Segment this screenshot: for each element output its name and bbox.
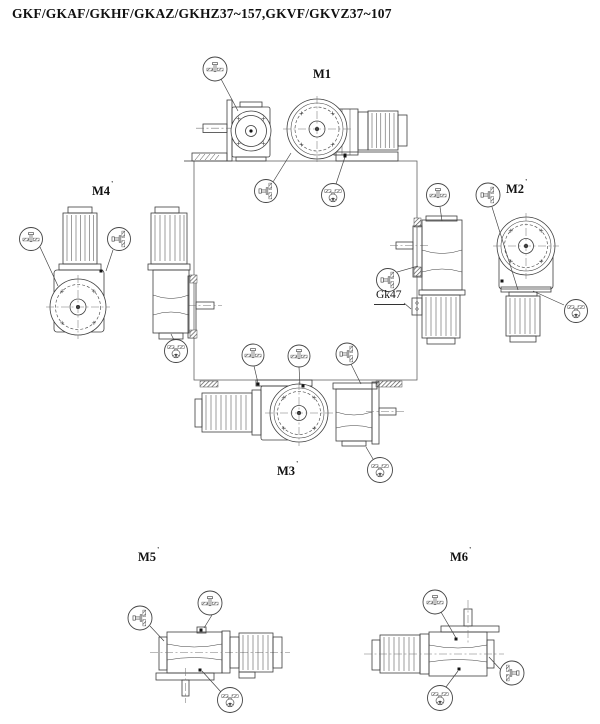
label-m4-text: M4 xyxy=(92,184,110,198)
label-m6: M6' xyxy=(450,550,470,564)
motor-flange xyxy=(148,264,190,270)
oil-level-callout xyxy=(242,344,264,386)
m4-side-view xyxy=(148,207,190,339)
housing-cap xyxy=(159,637,167,670)
oil-level-callout xyxy=(198,591,222,628)
motor-cap xyxy=(155,207,179,213)
label-m6-text: M6 xyxy=(450,550,468,564)
oil-fill-callout xyxy=(336,343,361,384)
oil-drain-callout xyxy=(202,671,243,713)
motor-fins xyxy=(67,215,94,261)
motor-flange xyxy=(59,264,101,270)
label-m2: M2' xyxy=(506,182,526,196)
oil-fill-callout xyxy=(255,153,292,203)
label-m5-sup: ' xyxy=(157,545,159,554)
motor-adapter xyxy=(509,292,537,296)
label-m3-sup: ' xyxy=(296,459,298,468)
m2-front-view xyxy=(493,213,559,342)
label-m1: M1 xyxy=(313,67,331,81)
output-flange-plate xyxy=(372,382,379,444)
base-plate xyxy=(156,673,214,680)
label-m5: M5' xyxy=(138,550,158,564)
terminal-box xyxy=(239,672,255,678)
m4-wall-flange xyxy=(188,275,222,338)
label-m5-text: M5 xyxy=(138,550,156,564)
oil-fill-callout xyxy=(106,228,131,272)
oil-drain-callout xyxy=(428,671,459,711)
gear-housing xyxy=(422,220,462,290)
ceiling-flange xyxy=(333,383,377,389)
motor-mount-flange xyxy=(419,290,465,295)
foot-plate xyxy=(501,287,551,292)
motor-fins xyxy=(206,395,246,430)
oil-level-callout xyxy=(203,57,238,111)
label-gk47: Gk47 xyxy=(374,290,405,305)
m3-front-view xyxy=(195,380,333,446)
motor-adapter xyxy=(358,112,368,150)
gear-unit-m5 xyxy=(150,627,290,703)
label-m3: M3' xyxy=(277,464,297,478)
label-m2-text: M2 xyxy=(506,182,524,196)
bracket-hatch xyxy=(195,154,219,160)
motor-cap xyxy=(68,207,92,213)
mounting-positions-diagram: GKF/GKAF/GKHF/GKAZ/GKHZ37~157,GKVF/GKVZ3… xyxy=(0,0,600,724)
oil-level-callout xyxy=(423,590,456,638)
page-title: GKF/GKAF/GKHF/GKAZ/GKHZ37~157,GKVF/GKVZ3… xyxy=(12,6,392,22)
motor-fins xyxy=(372,113,394,148)
motor-fins xyxy=(426,297,456,336)
gear-unit-m3 xyxy=(195,380,404,446)
label-m4-sup: ' xyxy=(111,179,113,188)
motor-cap xyxy=(195,399,202,427)
label-m6-sup: ' xyxy=(469,545,471,554)
motor-body xyxy=(202,393,252,432)
oil-fill-callout xyxy=(128,606,164,641)
oil-drain-callout xyxy=(366,447,393,483)
label-m4: M4' xyxy=(92,184,112,198)
oil-drain-callout xyxy=(165,334,188,363)
motor-adapter xyxy=(252,390,261,435)
label-m2-sup: ' xyxy=(525,177,527,186)
housing-feet xyxy=(236,157,266,161)
gear-unit-m1-front-view xyxy=(283,96,407,162)
label-m3-text: M3 xyxy=(277,464,295,478)
oil-level-callout xyxy=(20,228,59,287)
motor-body xyxy=(63,213,97,264)
gear-housing xyxy=(153,270,189,333)
motor-fins xyxy=(510,298,535,334)
m4-front-view xyxy=(46,207,110,339)
motor-fan-cap xyxy=(372,640,380,670)
motor-cap xyxy=(510,336,536,342)
gear-unit-m2 xyxy=(390,213,559,344)
motor-body xyxy=(368,111,398,150)
housing-cap xyxy=(342,441,366,446)
oil-drain-callout xyxy=(533,291,588,323)
oil-level-callout xyxy=(288,345,310,385)
motor-fins xyxy=(155,215,184,261)
oil-level-callout xyxy=(427,184,450,222)
output-flange xyxy=(222,631,230,673)
gear-unit-m4 xyxy=(46,207,190,339)
oil-drain-callout xyxy=(322,155,347,207)
label-m1-text: M1 xyxy=(313,67,331,81)
gear-unit-top-left-rear-view xyxy=(192,100,271,161)
diagram-canvas xyxy=(0,0,600,724)
motor-body xyxy=(151,213,187,264)
m3-side-view xyxy=(333,382,404,446)
motor-cap xyxy=(427,338,455,344)
motor-fan-cap xyxy=(398,115,407,146)
housing-cap xyxy=(159,333,183,339)
m2-side-view xyxy=(390,216,465,344)
